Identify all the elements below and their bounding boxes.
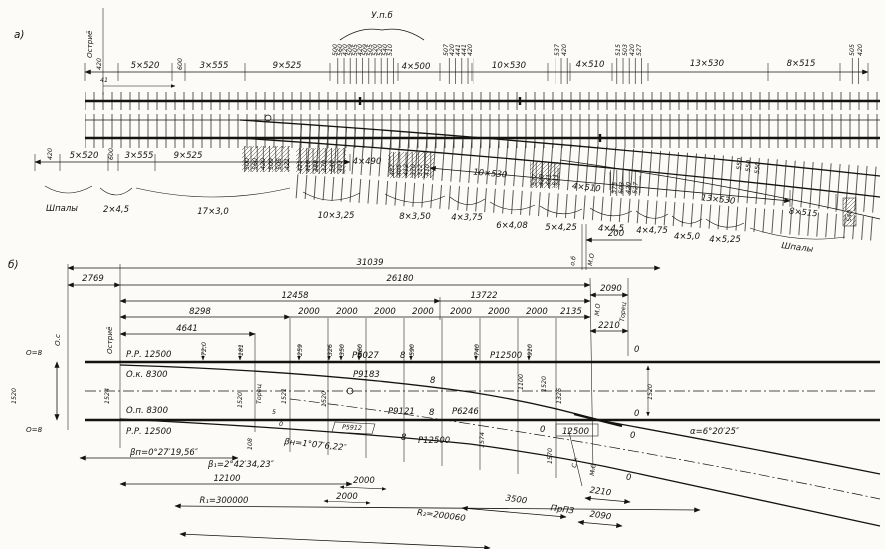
- tie-dim: 420: [561, 44, 568, 56]
- tie-dim: 421: [297, 160, 304, 172]
- tie-dim: 370: [410, 164, 417, 176]
- rail-label: Р12500: [490, 351, 522, 361]
- group-dim: 8×3,50: [399, 212, 430, 222]
- tie-dim: 410: [305, 160, 312, 172]
- ordinate: 326: [327, 344, 334, 356]
- dim: 2000: [450, 307, 472, 317]
- upb-brace: [340, 29, 424, 40]
- turnout-drawing: а) Остриё У.п.б 420 5×520 600 3×555 9×52…: [0, 0, 885, 549]
- tie-dim: 421: [284, 158, 291, 170]
- gap-label: 8: [429, 408, 435, 418]
- group-dim: 4×5,0: [674, 232, 700, 242]
- tie-dim: 505: [276, 158, 283, 170]
- dim: 420: [47, 148, 54, 160]
- dim: 2090: [600, 284, 622, 294]
- dim: 3×555: [125, 151, 154, 161]
- dim: 9×525: [174, 151, 203, 161]
- rail-label: Р9183: [353, 370, 380, 380]
- dim: 420: [96, 58, 103, 70]
- gauge-dim: 1570: [547, 448, 554, 464]
- dim: 9×525: [273, 61, 302, 71]
- tie-dim: 370: [321, 160, 328, 172]
- dim: 26180: [386, 274, 413, 284]
- dim: 600: [108, 148, 115, 160]
- rail-label: Р9121: [388, 407, 415, 417]
- dim: 13722: [470, 291, 497, 301]
- dim: 12458: [281, 291, 309, 301]
- rail-label: О.п. 8300: [126, 406, 168, 416]
- angle-label: β₁=2°42′34,23″: [207, 460, 275, 470]
- axis-label: о.б: [568, 255, 578, 266]
- rail-label: Р12500: [418, 436, 450, 446]
- ordinate: 72,0: [201, 342, 208, 356]
- panel-a: а) Остриё У.п.б 420 5×520 600 3×555 9×52…: [14, 8, 880, 270]
- labels-bottom: βп=0°27′19,56″ βн=1°07′6,22″ β₁=2°42′34,…: [80, 427, 740, 548]
- shpaly-label: Шпалы: [781, 241, 814, 255]
- dim: 2000: [336, 492, 358, 502]
- angle-label: α=6°20′25″: [690, 427, 740, 437]
- dim: 2000: [412, 307, 434, 317]
- ordinate: 910: [527, 344, 534, 356]
- dim: 3500: [505, 494, 528, 507]
- tie-dim: 509: [268, 158, 275, 170]
- tie-dim: 500: [244, 158, 251, 170]
- dim: 5×520: [70, 151, 99, 161]
- dim: 12100: [213, 474, 240, 484]
- group-dim: 6×4,08: [496, 221, 528, 231]
- tie-dim: 505: [849, 44, 856, 56]
- rail-label: Р6246: [452, 407, 479, 417]
- tie-dim: 511: [552, 174, 560, 186]
- rail-label: Р.Р. 12500: [126, 427, 171, 437]
- dim: 2000: [374, 307, 396, 317]
- dim: 3×555: [200, 61, 229, 71]
- axis-label: С.к: [571, 457, 579, 468]
- angle-label: βп=0°27′19,56″: [129, 448, 199, 458]
- point-tip-label: Остриё: [105, 326, 114, 354]
- dim: 4×500: [402, 62, 431, 72]
- dim: 8×515: [787, 59, 816, 69]
- tie-dim: 550: [754, 162, 762, 174]
- shpaly-label: Шпалы: [46, 204, 78, 214]
- tie-dim: 537: [554, 44, 561, 56]
- tie-dim: 388: [313, 160, 320, 172]
- angle-label: βн=1°07′6,22″: [283, 437, 348, 454]
- dim: 2000: [526, 307, 548, 317]
- dim: 2000: [488, 307, 510, 317]
- axis-label: М.О: [587, 253, 596, 266]
- dim: 13×530: [690, 59, 724, 69]
- tie-dim: 550: [736, 158, 744, 170]
- tie-dim: 515: [615, 44, 622, 56]
- ordinate: 350: [339, 344, 346, 356]
- group-dim: 10×3,25: [318, 211, 355, 221]
- gauge-dim: 1326: [556, 388, 563, 404]
- rail-label: О.к. 8300: [126, 370, 168, 380]
- upb-label: У.п.б: [371, 11, 392, 21]
- tie-dim: 540: [846, 210, 854, 222]
- dim: 2135: [560, 307, 582, 317]
- dim: 4×510: [576, 60, 605, 70]
- dim-chain-top: 420 5×520 600 3×555 9×525 4×500 10×530 4…: [85, 58, 868, 86]
- dim: 0: [279, 421, 283, 428]
- dim: 4641: [176, 324, 198, 334]
- ordinate-zero: 0: [634, 409, 639, 419]
- gap-label: О=8: [26, 425, 43, 434]
- rail-label: Р5912: [342, 424, 362, 432]
- ordinate: 740: [474, 344, 481, 356]
- gap-label: 8: [401, 433, 407, 443]
- radius-label: R₁=300000: [200, 496, 249, 506]
- dim: 4×490: [353, 157, 382, 167]
- axis-label: М.О: [594, 303, 602, 316]
- tie-dim: 560: [252, 158, 259, 170]
- group-dim: 4×3,75: [451, 213, 482, 223]
- gauge-dim: 1100: [518, 374, 525, 390]
- turnout-drawing-page: а) Остриё У.п.б 420 5×520 600 3×555 9×52…: [0, 0, 885, 549]
- tie-dim: 503: [622, 44, 629, 56]
- dim: 2210: [598, 321, 620, 331]
- group-dim: 2×4,5: [103, 205, 129, 215]
- dim: 2769: [82, 274, 104, 284]
- ordinate-zero: 0: [626, 473, 631, 483]
- axis-label: О.с: [53, 334, 62, 346]
- dim: 10×530: [492, 61, 526, 71]
- dim-chains-b: 31039 2769 26180 2090 12458 13722 8298 2…: [68, 258, 660, 334]
- tie-dim: 420: [467, 44, 474, 56]
- curved-centerline: [290, 399, 880, 499]
- rail-label: Р6027: [352, 351, 379, 361]
- ordinate-zero: 0: [540, 425, 545, 435]
- tie-dim: 493: [337, 160, 344, 172]
- tie-dim: 410: [424, 164, 431, 176]
- tie-dim: 420: [857, 44, 864, 56]
- tie-dim: 420: [629, 44, 636, 56]
- dim: 2000: [298, 307, 320, 317]
- panel-b: б) 31039 2769 26180 2090 12458 13722 829…: [8, 258, 880, 548]
- tie-dim: 510: [387, 44, 394, 56]
- tie-dim: 420: [260, 158, 267, 170]
- tie-dim: 550: [745, 160, 753, 172]
- axis-label: Торец: [619, 302, 628, 322]
- dim: 2210: [589, 486, 612, 499]
- panel-b-tag: б): [8, 259, 19, 271]
- gauge-dim: 1521: [281, 388, 288, 404]
- radius-label: R₂=200060: [416, 508, 466, 524]
- tie-dims-top: 500 560 420 509 505 420 509 505 520 520 …: [332, 44, 864, 56]
- dim: 8298: [189, 307, 211, 317]
- rail-label: Р.Р. 12500: [126, 350, 171, 360]
- ordinate: 181: [238, 344, 245, 356]
- gap-label: О=8: [26, 348, 43, 357]
- tie-dim: 527: [636, 44, 643, 56]
- group-dim: 5×4,25: [545, 223, 576, 233]
- curved-rail-outer: [120, 419, 880, 526]
- gap-label: 8: [400, 351, 406, 361]
- group-dim: 4×5,25: [709, 235, 740, 245]
- dim: 41: [100, 77, 108, 84]
- tie-dim: 487: [389, 164, 396, 176]
- frog-mark: 12500: [562, 427, 589, 437]
- gauge-dim: 1520: [321, 391, 328, 407]
- gauge-dim: 1520: [541, 376, 548, 392]
- dim: 2000: [336, 307, 358, 317]
- gauge-dim: 1520: [237, 392, 244, 408]
- ordinate-zero: 0: [634, 345, 639, 355]
- point-tip-label: Остриё: [85, 30, 94, 58]
- tie-dim: 540: [329, 160, 336, 172]
- axis-label: М.О: [589, 463, 598, 476]
- panel-a-tag: а): [14, 29, 25, 41]
- dim: 600: [177, 58, 184, 70]
- group-dim: 4×4,75: [636, 226, 667, 236]
- ordinate: 259: [297, 344, 304, 356]
- dim: 5×520: [131, 61, 160, 71]
- limit-post-label: ПрПЗ: [550, 503, 575, 516]
- torec-label: Торец: [256, 384, 263, 404]
- ordinate: 590: [409, 344, 416, 356]
- ordinate-zero: 0: [630, 431, 635, 441]
- tie-dim: 527: [632, 182, 640, 194]
- gap-label: 8: [430, 376, 436, 386]
- gauge-dim: 1524: [104, 388, 111, 404]
- dim: 5: [272, 409, 276, 416]
- gauge-dim: 1520: [11, 388, 18, 404]
- tie-dim: 412: [403, 164, 410, 176]
- dim: 2000: [353, 476, 375, 486]
- dim: 31039: [356, 258, 383, 268]
- gauge-dim: 1574: [479, 432, 486, 448]
- tie-dim: 312: [417, 164, 424, 176]
- dim: 108: [247, 438, 254, 450]
- group-dim: 17×3,0: [197, 207, 228, 217]
- tie-dim: 405: [396, 164, 403, 176]
- dim: 2090: [589, 510, 612, 523]
- dim: 200: [608, 229, 624, 239]
